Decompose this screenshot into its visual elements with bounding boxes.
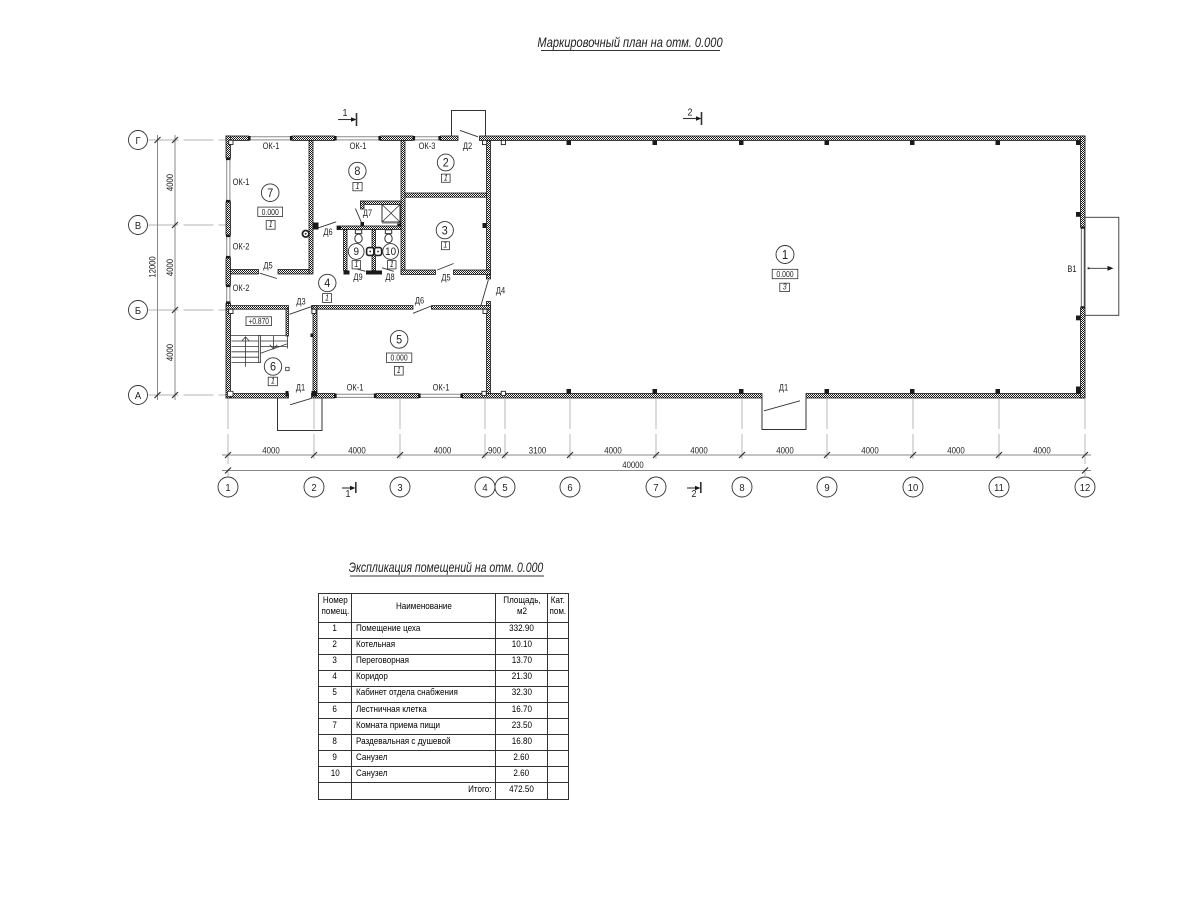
svg-text:ОК-1: ОК-1 <box>233 177 250 187</box>
svg-text:В: В <box>135 220 142 232</box>
svg-text:6: 6 <box>567 482 573 494</box>
svg-text:10: 10 <box>385 247 396 259</box>
svg-text:12000: 12000 <box>147 256 158 278</box>
svg-text:4000: 4000 <box>776 445 794 456</box>
svg-text:Д1: Д1 <box>779 383 789 393</box>
svg-text:Д3: Д3 <box>296 297 306 307</box>
svg-text:3: 3 <box>397 482 403 494</box>
svg-text:1: 1 <box>342 108 347 120</box>
svg-text:Д5: Д5 <box>441 273 451 283</box>
svg-text:ОК-1: ОК-1 <box>433 383 450 393</box>
svg-text:1: 1 <box>444 173 448 182</box>
svg-text:Д8: Д8 <box>385 272 395 282</box>
svg-text:1: 1 <box>269 220 273 229</box>
svg-text:4000: 4000 <box>164 174 175 191</box>
svg-text:Экспликация помещений на отм.: Экспликация помещений на отм. 0.000 <box>349 560 544 576</box>
svg-text:8: 8 <box>739 482 745 494</box>
svg-text:11: 11 <box>994 482 1004 494</box>
svg-text:1: 1 <box>397 366 401 375</box>
svg-text:9: 9 <box>824 482 830 494</box>
svg-text:Б: Б <box>135 305 142 317</box>
svg-text:5: 5 <box>502 482 508 494</box>
svg-text:1: 1 <box>354 260 358 269</box>
svg-text:2: 2 <box>443 157 449 170</box>
svg-text:ОК-3: ОК-3 <box>419 141 436 151</box>
svg-text:1: 1 <box>325 293 329 302</box>
svg-text:ОК-1: ОК-1 <box>347 383 364 393</box>
svg-text:0.000: 0.000 <box>390 353 407 363</box>
svg-text:ОК-2: ОК-2 <box>233 283 250 293</box>
svg-text:1: 1 <box>345 489 350 501</box>
svg-text:4000: 4000 <box>434 445 452 456</box>
svg-text:А: А <box>135 390 142 402</box>
svg-text:10: 10 <box>908 482 919 494</box>
svg-text:4: 4 <box>482 482 488 494</box>
svg-text:1: 1 <box>782 247 789 262</box>
svg-text:1: 1 <box>271 376 275 385</box>
svg-text:Д6: Д6 <box>415 296 425 306</box>
svg-text:2: 2 <box>687 107 692 119</box>
svg-text:В1: В1 <box>1067 264 1076 274</box>
svg-text:Д1: Д1 <box>296 383 306 393</box>
svg-text:8: 8 <box>354 166 360 179</box>
svg-text:3100: 3100 <box>529 445 547 456</box>
svg-text:4000: 4000 <box>690 445 708 456</box>
svg-text:4000: 4000 <box>861 445 879 456</box>
svg-text:Д5: Д5 <box>263 261 273 271</box>
svg-text:0.000: 0.000 <box>776 269 793 279</box>
svg-text:4000: 4000 <box>604 445 622 456</box>
svg-text:4000: 4000 <box>262 445 280 456</box>
svg-text:3: 3 <box>442 225 448 238</box>
svg-text:Д4: Д4 <box>496 286 506 296</box>
svg-text:900: 900 <box>488 445 501 456</box>
svg-text:1: 1 <box>225 482 231 494</box>
svg-text:9: 9 <box>353 247 359 259</box>
svg-text:1: 1 <box>390 260 394 269</box>
svg-text:5: 5 <box>396 334 402 347</box>
svg-text:Д2: Д2 <box>463 141 473 151</box>
svg-text:Д9: Д9 <box>353 272 363 282</box>
svg-text:6: 6 <box>270 361 276 374</box>
svg-text:7: 7 <box>653 482 659 494</box>
svg-text:0.000: 0.000 <box>262 207 279 217</box>
svg-text:7: 7 <box>267 187 273 200</box>
svg-text:2: 2 <box>311 482 317 494</box>
svg-text:4000: 4000 <box>164 344 175 361</box>
svg-text:1: 1 <box>355 181 359 190</box>
svg-text:4000: 4000 <box>164 259 175 276</box>
svg-text:1: 1 <box>443 240 447 249</box>
svg-text:Д7: Д7 <box>363 208 373 218</box>
svg-text:ОК-1: ОК-1 <box>263 141 280 151</box>
svg-text:2: 2 <box>691 489 696 501</box>
svg-text:4: 4 <box>324 278 331 291</box>
svg-text:+0.870: +0.870 <box>248 316 268 326</box>
svg-text:4000: 4000 <box>947 445 965 456</box>
svg-text:4000: 4000 <box>348 445 366 456</box>
svg-text:Маркировочный план на отм. 0.0: Маркировочный план на отм. 0.000 <box>537 35 722 50</box>
svg-text:Г: Г <box>135 135 141 147</box>
svg-text:40000: 40000 <box>622 459 644 470</box>
svg-text:ОК-2: ОК-2 <box>233 242 250 252</box>
svg-text:ОК-1: ОК-1 <box>350 141 367 151</box>
svg-text:4000: 4000 <box>1033 445 1051 456</box>
svg-text:Д6: Д6 <box>323 227 333 237</box>
svg-text:12: 12 <box>1080 482 1091 494</box>
